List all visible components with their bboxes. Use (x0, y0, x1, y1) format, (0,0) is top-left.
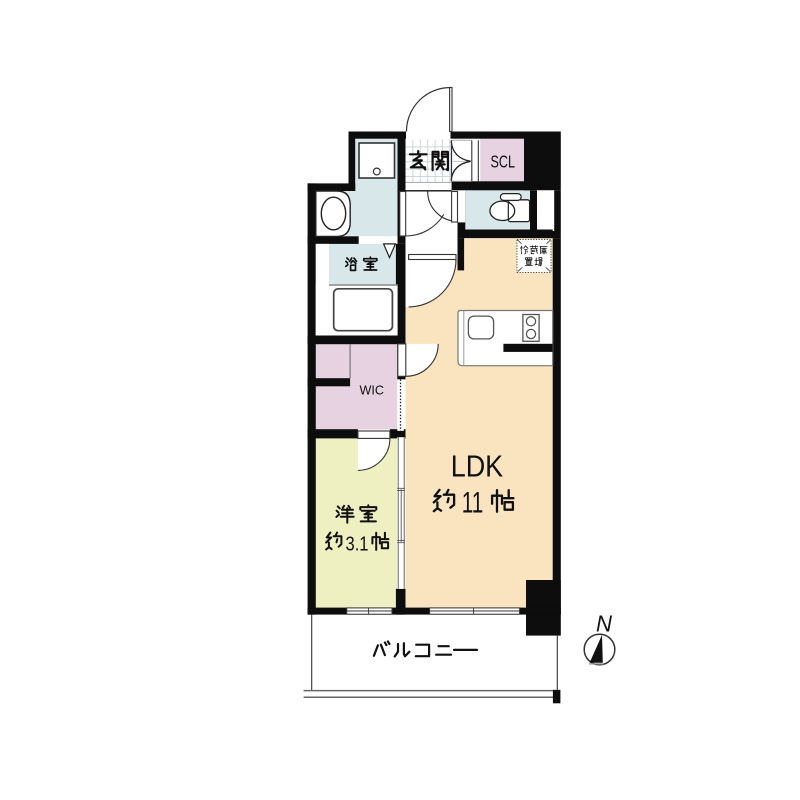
svg-text:WIC: WIC (360, 384, 385, 398)
svg-text:SCL: SCL (491, 151, 516, 171)
svg-text:N: N (596, 611, 612, 637)
svg-text:11: 11 (462, 487, 484, 520)
svg-text:3.1: 3.1 (346, 534, 369, 556)
svg-text:LDK: LDK (451, 448, 504, 483)
